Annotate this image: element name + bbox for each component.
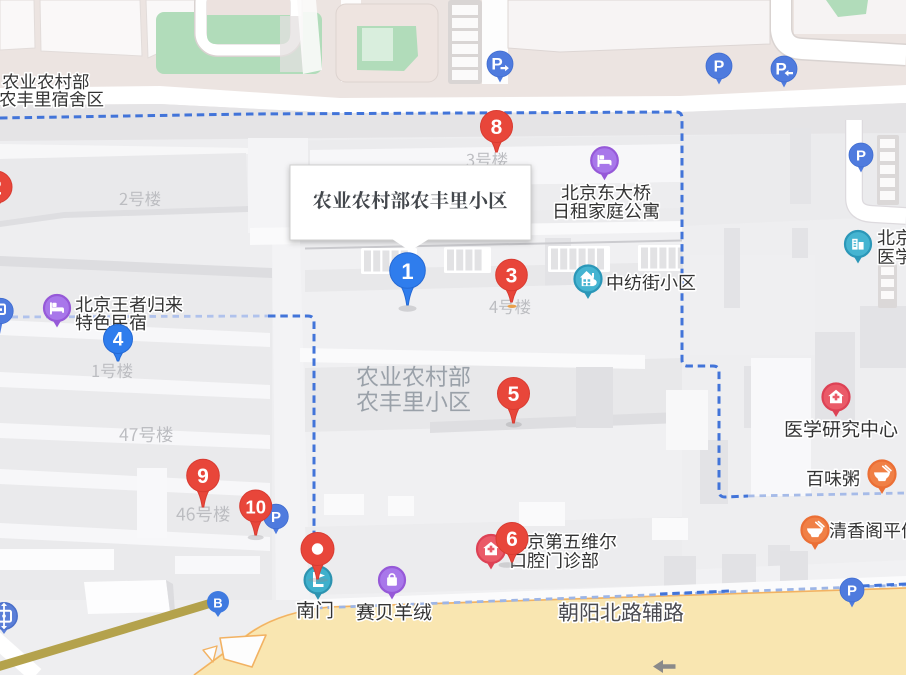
svg-text:P: P <box>491 55 502 74</box>
svg-text:2: 2 <box>0 177 2 200</box>
svg-text:P: P <box>775 60 786 79</box>
svg-text:4: 4 <box>113 330 124 351</box>
svg-text:10: 10 <box>245 497 266 518</box>
svg-text:8: 8 <box>491 116 503 139</box>
svg-text:1: 1 <box>401 259 413 284</box>
svg-text:3: 3 <box>506 265 518 288</box>
svg-text:5: 5 <box>508 383 520 406</box>
svg-text:P: P <box>856 148 866 165</box>
svg-text:B: B <box>213 596 222 611</box>
svg-text:P: P <box>271 509 281 526</box>
svg-text:9: 9 <box>197 465 209 488</box>
svg-text:P: P <box>714 59 725 76</box>
svg-text:P: P <box>847 583 857 600</box>
svg-text:6: 6 <box>506 528 518 551</box>
